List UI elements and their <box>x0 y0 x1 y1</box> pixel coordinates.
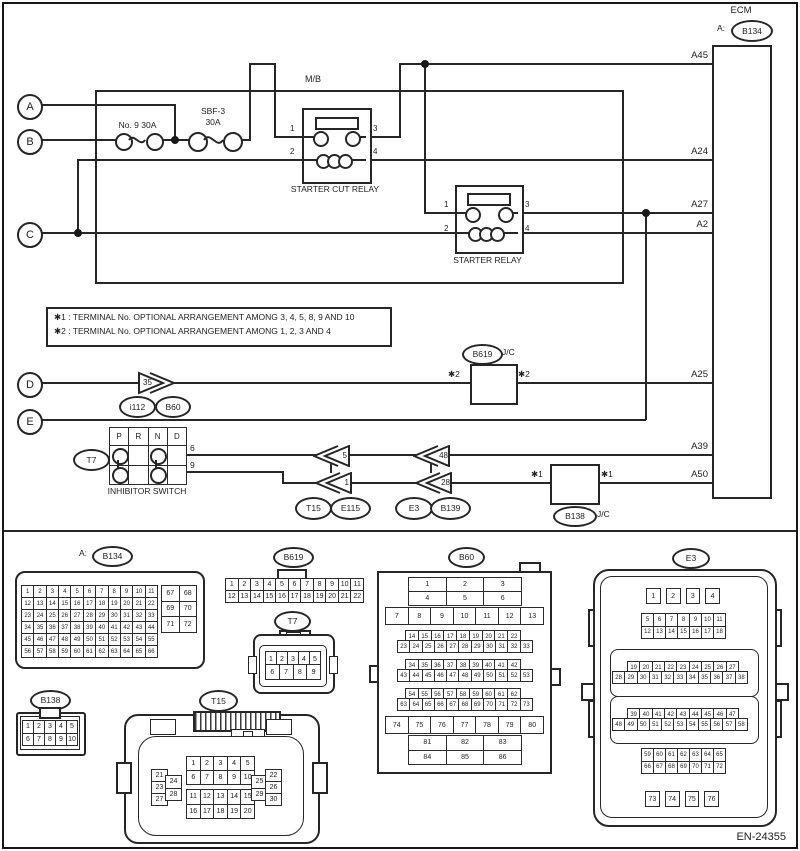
t15-left-col-b: 2428 <box>165 775 182 801</box>
pin-cell-21: 21 <box>133 598 144 609</box>
relay1-coil-loop <box>338 154 353 169</box>
pin-cell-1: 1 <box>226 579 238 590</box>
starter-cut-relay-contact-bar <box>315 117 359 130</box>
pin-cell-26: 26 <box>59 610 70 621</box>
b619-jc-box <box>470 364 518 405</box>
pin-cell-54: 54 <box>687 719 698 730</box>
pin-cell-41: 41 <box>109 622 120 633</box>
pin-cell-70: 70 <box>180 602 197 617</box>
pin-cell-19: 19 <box>228 805 241 819</box>
pin-cell-26: 26 <box>435 641 446 652</box>
pin-cell-49: 49 <box>625 719 636 730</box>
note-line-2: ✱2 : TERMINAL No. OPTIONAL ARRANGEMENT A… <box>54 327 331 337</box>
fuse2-label-2: 30A <box>190 118 236 128</box>
pin-cell-70: 70 <box>484 699 495 710</box>
oval-i112: i112 <box>119 396 156 418</box>
pin-cell-52: 52 <box>508 670 519 681</box>
relay2-contact-left <box>465 207 481 223</box>
pin-cell-65: 65 <box>423 699 434 710</box>
b619-jc-label: J/C <box>502 348 515 358</box>
pin-cell-9: 9 <box>121 586 132 597</box>
pin-cell-58: 58 <box>47 646 58 657</box>
pin-cell-6: 6 <box>266 665 279 679</box>
inhibitor-contact-p1 <box>112 448 129 465</box>
inhibitor-link-n <box>155 460 157 468</box>
pin-cell-20: 20 <box>326 591 338 602</box>
pin-cell-56: 56 <box>22 646 33 657</box>
t15-right-col-b: 222630 <box>265 769 282 806</box>
pin-cell-6: 6 <box>654 614 665 626</box>
pin-cell-28: 28 <box>459 641 470 652</box>
pin-label-a45: A45 <box>668 51 708 62</box>
pin-cell-50: 50 <box>638 719 649 730</box>
pin-cell-36: 36 <box>47 622 58 633</box>
pin-label-a2: A2 <box>668 220 708 231</box>
pin-cell-45: 45 <box>423 670 434 681</box>
pin-cell-22: 22 <box>351 591 363 602</box>
junction-dot-a45 <box>421 60 429 68</box>
b138-grid: 12345678910 <box>22 720 78 746</box>
pin-cell-N: N <box>149 428 167 446</box>
fuse2-element <box>202 132 225 148</box>
pin-cell-4: 4 <box>228 757 241 770</box>
ecm-connector-prefix: A: <box>717 24 725 34</box>
pin-cell-6: 6 <box>23 734 33 746</box>
pin-cell-8: 8 <box>294 665 307 679</box>
pin-cell-13: 13 <box>521 608 543 624</box>
note-line-1: ✱1 : TERMINAL No. OPTIONAL ARRANGEMENT A… <box>54 313 354 323</box>
pin-cell-43: 43 <box>133 622 144 633</box>
pin-cell-80: 80 <box>521 717 543 733</box>
pin-cell-74: 74 <box>386 717 408 733</box>
pin-cell-72: 72 <box>508 699 519 710</box>
pin-cell-12: 12 <box>226 591 238 602</box>
t15-top-grid: 12345678910 <box>186 756 255 785</box>
pin-cell-31: 31 <box>121 610 132 621</box>
ring-c: C <box>17 222 43 248</box>
pin-cell-1: 1 <box>23 721 33 733</box>
pin-label-a50: A50 <box>668 470 708 481</box>
inhibitor-contact-p2 <box>112 467 129 484</box>
pin-cell-35: 35 <box>34 622 45 633</box>
pin-cell-63: 63 <box>690 749 701 761</box>
e3-grid-48-58: 4849505152535455565758 <box>612 718 748 731</box>
pin-cell-9: 9 <box>326 579 338 590</box>
pin-cell-5: 5 <box>71 586 82 597</box>
pin-cell-61: 61 <box>84 646 95 657</box>
arrow-35-number: 35 <box>143 379 152 387</box>
pin-cell-68: 68 <box>180 586 197 601</box>
pin-cell-39: 39 <box>84 622 95 633</box>
pin-cell-32: 32 <box>662 672 673 683</box>
ring-a: A <box>17 94 43 120</box>
pin-cell-55: 55 <box>699 719 710 730</box>
pin-cell-30: 30 <box>266 794 281 805</box>
b619-title-oval: B619 <box>273 547 314 568</box>
e3-grid-5-18: 56789101112131415161718 <box>641 613 726 639</box>
arrow-pair-dash-2 <box>430 464 432 473</box>
pin-cell-10: 10 <box>67 734 77 746</box>
pin-cell-19: 19 <box>314 591 326 602</box>
pin-cell-56: 56 <box>711 719 722 730</box>
relay1-t2: 2 <box>290 147 294 156</box>
pin-cell-50: 50 <box>484 670 495 681</box>
fuse2-terminal-right <box>223 132 243 152</box>
e3-grid-59-72: 5960616263646566676869707172 <box>641 748 726 774</box>
pin-cell-47: 47 <box>447 670 458 681</box>
pin-cell-9: 9 <box>690 614 701 626</box>
pin-cell-3: 3 <box>251 579 263 590</box>
pin-cell-blank <box>129 466 147 485</box>
pin-cell-64: 64 <box>410 699 421 710</box>
pin-cell-59: 59 <box>642 749 653 761</box>
t15-title-oval: T15 <box>199 690 238 712</box>
pin-cell-P: P <box>110 428 128 446</box>
star1-right: ✱1 <box>601 470 613 480</box>
pin-cell-18: 18 <box>301 591 313 602</box>
pin-cell-6: 6 <box>289 579 301 590</box>
oval-b619: B619 <box>462 344 503 365</box>
oval-e3: E3 <box>395 497 433 520</box>
pin-cell-6: 6 <box>84 586 95 597</box>
pin-cell-23: 23 <box>22 610 33 621</box>
pin-cell-51: 51 <box>96 634 107 645</box>
pin-cell-8: 8 <box>109 586 120 597</box>
arrow-pair-dash-1 <box>330 464 332 473</box>
pin-cell-70: 70 <box>690 762 701 774</box>
pin-cell-7: 7 <box>666 614 677 626</box>
relay1-t3: 3 <box>373 124 377 133</box>
wire-e <box>40 419 646 421</box>
pin-cell-42: 42 <box>121 622 132 633</box>
starter-relay-label: STARTER RELAY <box>420 256 555 266</box>
pin-cell-64: 64 <box>121 646 132 657</box>
pin-cell-50: 50 <box>84 634 95 645</box>
pin-cell-55: 55 <box>146 634 157 645</box>
relay2-contact-right <box>498 207 514 223</box>
ecm-box <box>712 45 772 499</box>
pin-cell-7: 7 <box>301 579 313 590</box>
pin-cell-46: 46 <box>34 634 45 645</box>
t15-top-block-left <box>150 719 176 735</box>
pin-cell-40: 40 <box>96 622 107 633</box>
pin-cell-69: 69 <box>472 699 483 710</box>
b60-grid-74-80: 74757677787980 <box>385 716 544 734</box>
pin-cell-blank <box>168 466 186 485</box>
pin-cell-67: 67 <box>447 699 458 710</box>
relay1-contact-left <box>313 131 329 147</box>
pin-cell-1: 1 <box>22 586 33 597</box>
pin-cell-9: 9 <box>56 734 66 746</box>
pin-cell-75: 75 <box>685 791 700 807</box>
b134-title-prefix: A: <box>79 549 87 559</box>
pin-cell-68: 68 <box>459 699 470 710</box>
pin-cell-6: 6 <box>484 592 521 605</box>
section-divider <box>4 530 796 532</box>
pin-cell-57: 57 <box>34 646 45 657</box>
pin-cell-20: 20 <box>121 598 132 609</box>
pin-cell-2: 2 <box>34 721 44 733</box>
pin-cell-5: 5 <box>67 721 77 733</box>
terminal-9-label: 9 <box>190 461 195 471</box>
pin-cell-77: 77 <box>454 717 476 733</box>
pin-cell-81: 81 <box>409 736 446 750</box>
connector-arrow-1: 1 <box>315 472 353 494</box>
pin-cell-63: 63 <box>398 699 409 710</box>
star1-left: ✱1 <box>531 470 543 480</box>
pin-cell-17: 17 <box>84 598 95 609</box>
pin-cell-22: 22 <box>146 598 157 609</box>
pin-cell-68: 68 <box>666 762 677 774</box>
junction-dot-a27 <box>642 209 650 217</box>
star2-left: ✱2 <box>448 370 460 380</box>
pin-cell-6: 6 <box>187 771 200 784</box>
pin-cell-25: 25 <box>47 610 58 621</box>
pin-cell-4: 4 <box>59 586 70 597</box>
pin-cell-54: 54 <box>133 634 144 645</box>
b60-grid-1-6: 123456 <box>408 577 522 606</box>
ecm-title: ECM <box>715 6 767 17</box>
pin-cell-71: 71 <box>702 762 713 774</box>
pin-cell-2: 2 <box>201 757 214 770</box>
pin-cell-3: 3 <box>484 578 521 591</box>
wire-e-up <box>645 212 647 420</box>
pin-cell-33: 33 <box>674 672 685 683</box>
pin-cell-62: 62 <box>96 646 107 657</box>
b60-grid-23-33: 2324252627282930313233 <box>397 640 533 653</box>
inhibitor-contact-n2 <box>150 467 167 484</box>
wire-t9a <box>185 471 284 473</box>
inhibitor-gear-header: PRND <box>109 427 187 447</box>
pin-cell-16: 16 <box>71 598 82 609</box>
b60-grid-81-86: 818283848586 <box>408 735 522 765</box>
pin-cell-7: 7 <box>34 734 44 746</box>
connector-arrow-5: 5 <box>313 445 351 467</box>
pin-cell-29: 29 <box>625 672 636 683</box>
pin-cell-11: 11 <box>714 614 725 626</box>
pin-cell-36: 36 <box>711 672 722 683</box>
pin-cell-63: 63 <box>109 646 120 657</box>
pin-cell-76: 76 <box>704 791 719 807</box>
pin-cell-2: 2 <box>34 586 45 597</box>
inhibitor-link-p <box>117 460 119 468</box>
pin-cell-14: 14 <box>228 790 241 804</box>
pin-cell-60: 60 <box>71 646 82 657</box>
pin-cell-53: 53 <box>121 634 132 645</box>
pin-cell-5: 5 <box>276 579 288 590</box>
pin-cell-18: 18 <box>714 627 725 639</box>
oval-t15: T15 <box>295 497 332 520</box>
pin-cell-58: 58 <box>736 719 747 730</box>
b60-title-oval: B60 <box>448 547 485 568</box>
pin-cell-8: 8 <box>45 734 55 746</box>
pin-cell-23: 23 <box>398 641 409 652</box>
pin-cell-53: 53 <box>674 719 685 730</box>
pin-cell-71: 71 <box>496 699 507 710</box>
pin-cell-12: 12 <box>201 790 214 804</box>
pin-cell-85: 85 <box>447 751 484 765</box>
e3-grid-28-38: 2829303132333435363738 <box>612 671 748 684</box>
pin-cell-11: 11 <box>476 608 498 624</box>
oval-e115: E115 <box>330 497 371 520</box>
pin-cell-34: 34 <box>22 622 33 633</box>
pin-cell-3: 3 <box>45 721 55 733</box>
pin-cell-11: 11 <box>146 586 157 597</box>
pin-cell-30: 30 <box>638 672 649 683</box>
pin-cell-38: 38 <box>71 622 82 633</box>
starter-cut-relay-label: STARTER CUT RELAY <box>270 185 400 195</box>
pin-cell-28: 28 <box>613 672 624 683</box>
pin-cell-9: 9 <box>431 608 453 624</box>
wire-a45 <box>400 63 712 65</box>
pin-label-a25: A25 <box>668 370 708 381</box>
relay2-coil-loop <box>490 227 505 242</box>
pin-cell-48: 48 <box>613 719 624 730</box>
pin-cell-7: 7 <box>201 771 214 784</box>
pin-cell-28: 28 <box>166 789 181 801</box>
pin-cell-13: 13 <box>214 790 227 804</box>
pin-cell-53: 53 <box>521 670 532 681</box>
b138-jc-label: J/C <box>597 510 610 520</box>
relay2-coil-stub-r <box>504 232 518 234</box>
connector-arrow-48: 48 <box>413 445 451 467</box>
pin-cell-43: 43 <box>398 670 409 681</box>
pin-cell-18: 18 <box>96 598 107 609</box>
b60-grid-7-13: 78910111213 <box>385 607 544 625</box>
pin-cell-5: 5 <box>642 614 653 626</box>
pin-label-a27: A27 <box>668 200 708 211</box>
pin-cell-12: 12 <box>642 627 653 639</box>
pin-cell-28: 28 <box>84 610 95 621</box>
pin-cell-82: 82 <box>447 736 484 750</box>
pin-cell-78: 78 <box>476 717 498 733</box>
mb-label: M/B <box>305 74 321 84</box>
pin-cell-13: 13 <box>239 591 251 602</box>
pin-cell-14: 14 <box>666 627 677 639</box>
pin-cell-16: 16 <box>690 627 701 639</box>
wiring-diagram-page: M/B A B C D E No. 9 30A SBF-3 30A 1 3 2 … <box>0 0 800 851</box>
pin-cell-49: 49 <box>472 670 483 681</box>
relay1-contact-right <box>345 131 361 147</box>
pin-cell-2: 2 <box>447 578 484 591</box>
wire-jog-top <box>249 63 276 65</box>
ecm-connector-oval: B134 <box>731 20 773 42</box>
pin-cell-16: 16 <box>187 805 200 819</box>
pin-cell-24: 24 <box>410 641 421 652</box>
pin-cell-84: 84 <box>409 751 446 765</box>
pin-cell-5: 5 <box>447 592 484 605</box>
pin-cell-15: 15 <box>59 598 70 609</box>
pin-cell-3: 3 <box>686 588 701 604</box>
terminal-6-label: 6 <box>190 444 195 454</box>
pin-cell-65: 65 <box>714 749 725 761</box>
e3-grid-73-76: 73747576 <box>645 791 719 807</box>
t7-title-oval: T7 <box>274 611 311 632</box>
arrow-48-number: 48 <box>439 452 448 460</box>
b619-grid: 12345678910111213141516171819202122 <box>225 578 364 603</box>
pin-cell-14: 14 <box>251 591 263 602</box>
relay2-t1: 1 <box>444 200 448 209</box>
t15-ear-left <box>116 762 132 794</box>
e3-grid-1-4: 1234 <box>646 588 720 604</box>
t15-bottom-grid: 11121314151617181920 <box>186 789 255 819</box>
b134-side-grid: 676869707172 <box>161 585 197 633</box>
pin-cell-46: 46 <box>435 670 446 681</box>
ring-b: B <box>17 129 43 155</box>
pin-cell-4: 4 <box>409 592 446 605</box>
pin-cell-57: 57 <box>723 719 734 730</box>
pin-cell-5: 5 <box>241 757 254 770</box>
t7-bump-right <box>329 656 338 674</box>
pin-cell-20: 20 <box>241 805 254 819</box>
pin-cell-17: 17 <box>201 805 214 819</box>
pin-cell-79: 79 <box>499 717 521 733</box>
pin-cell-2: 2 <box>666 588 681 604</box>
pin-cell-66: 66 <box>642 762 653 774</box>
pin-cell-67: 67 <box>162 586 179 601</box>
pin-label-a24: A24 <box>668 147 708 158</box>
pin-cell-30: 30 <box>484 641 495 652</box>
pin-cell-8: 8 <box>678 614 689 626</box>
fuse1-label: No. 9 30A <box>100 121 175 131</box>
pin-cell-30: 30 <box>109 610 120 621</box>
inhibitor-contact-n1 <box>150 448 167 465</box>
pin-cell-14: 14 <box>47 598 58 609</box>
relay2-t3: 3 <box>525 200 529 209</box>
pin-cell-8: 8 <box>409 608 431 624</box>
pin-cell-4: 4 <box>705 588 720 604</box>
pin-cell-26: 26 <box>266 782 281 793</box>
pin-cell-1: 1 <box>409 578 446 591</box>
pin-cell-10: 10 <box>133 586 144 597</box>
pin-cell-10: 10 <box>339 579 351 590</box>
junction-dot-c <box>74 229 82 237</box>
pin-cell-32: 32 <box>508 641 519 652</box>
arrow-28-number: 28 <box>441 479 450 487</box>
pin-cell-11: 11 <box>351 579 363 590</box>
pin-cell-8: 8 <box>314 579 326 590</box>
pin-cell-21: 21 <box>339 591 351 602</box>
pin-cell-19: 19 <box>109 598 120 609</box>
oval-b138: B138 <box>553 506 597 527</box>
pin-cell-24: 24 <box>34 610 45 621</box>
pin-cell-1: 1 <box>646 588 661 604</box>
pin-cell-8: 8 <box>214 771 227 784</box>
oval-t7: T7 <box>73 449 110 471</box>
pin-cell-83: 83 <box>484 736 521 750</box>
pin-cell-37: 37 <box>59 622 70 633</box>
pin-cell-37: 37 <box>723 672 734 683</box>
pin-cell-33: 33 <box>146 610 157 621</box>
pin-cell-61: 61 <box>666 749 677 761</box>
pin-cell-24: 24 <box>166 776 181 788</box>
b138-top-tab <box>39 707 61 719</box>
pin-cell-69: 69 <box>678 762 689 774</box>
ring-e: E <box>17 409 43 435</box>
relay1-coil-stub-r <box>351 159 366 161</box>
pin-cell-D: D <box>168 428 186 446</box>
pin-cell-51: 51 <box>650 719 661 730</box>
pin-cell-49: 49 <box>71 634 82 645</box>
pin-cell-22: 22 <box>266 770 281 781</box>
pin-cell-33: 33 <box>521 641 532 652</box>
pin-cell-76: 76 <box>431 717 453 733</box>
diagram-code: EN-24355 <box>700 831 786 844</box>
pin-cell-7: 7 <box>386 608 408 624</box>
arrow-5-number: 5 <box>343 452 347 460</box>
pin-cell-31: 31 <box>496 641 507 652</box>
pin-cell-15: 15 <box>264 591 276 602</box>
